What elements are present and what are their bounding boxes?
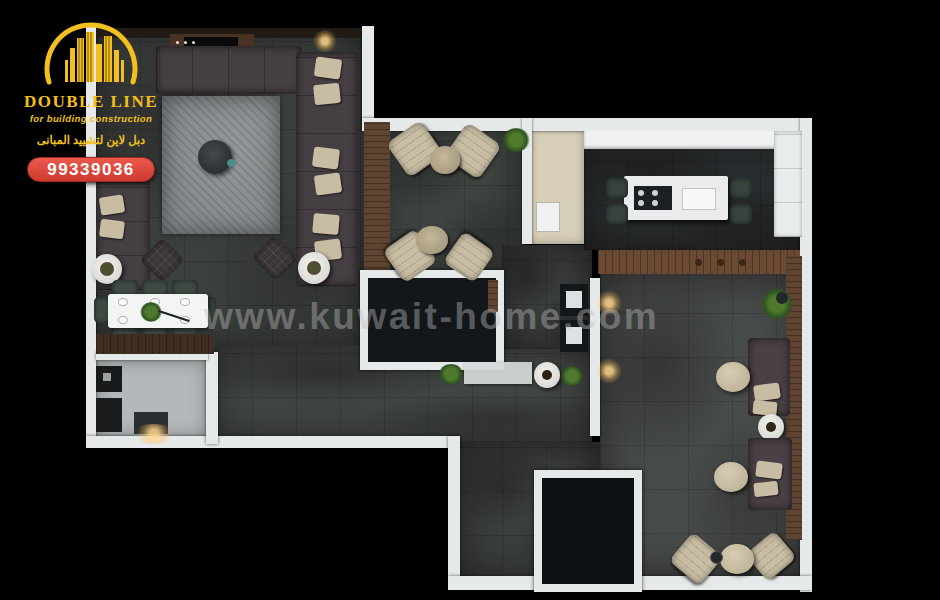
sofa-pillow: [755, 460, 783, 479]
coffee-table: [198, 140, 232, 174]
bathroom: [360, 270, 504, 370]
burner: [638, 200, 644, 206]
fridge-cabinet: [774, 131, 802, 237]
oven-door: [566, 327, 582, 344]
sofa-pillow: [312, 146, 340, 169]
dishwasher: [536, 202, 560, 232]
candle: [176, 41, 179, 44]
majlis-small-table: [710, 551, 723, 564]
majlis-pouf: [716, 362, 750, 392]
place-setting: [118, 316, 128, 324]
candle: [192, 41, 195, 44]
nook-table: [430, 146, 460, 174]
sofa-pillow: [314, 172, 343, 195]
sofa-pillow: [314, 56, 343, 79]
majlis-round-table: [720, 544, 754, 574]
brand-tagline: for building construction: [18, 113, 164, 124]
sofa-pillow: [99, 194, 126, 216]
dining-console: [96, 334, 214, 354]
floorplan-render: www.kuwait-home.com DOUBLE LINE for buil…: [0, 0, 940, 600]
place-setting: [118, 298, 128, 306]
counter-knob: [739, 259, 746, 266]
kitchen-upper-cabinets: [584, 131, 776, 149]
side-table-plant: [307, 261, 321, 275]
hall-table-decor: [542, 370, 552, 380]
wall-top-long: [362, 118, 812, 131]
counter-knob: [717, 259, 724, 266]
hall-plant: [438, 364, 464, 384]
wall-bottom-left: [86, 436, 460, 448]
nook-plant: [502, 128, 530, 152]
phone-badge: 99339036: [27, 157, 155, 182]
hall-runner-mat: [464, 362, 532, 384]
bar-stool: [606, 204, 628, 224]
skyline-logo-icon: [39, 20, 143, 90]
majlis-table-decor: [766, 422, 776, 432]
burner: [652, 200, 658, 206]
brand-name: DOUBLE LINE: [18, 92, 164, 112]
sofa-pillow: [312, 213, 340, 235]
table-decor: [227, 159, 236, 167]
bar-stool: [730, 178, 752, 198]
candle: [184, 41, 187, 44]
bar-stool: [730, 204, 752, 224]
majlis-plant-pot: [776, 292, 788, 304]
hall-plant: [560, 366, 584, 386]
place-setting: [180, 298, 190, 306]
brand-panel: DOUBLE LINE for building construction دب…: [18, 20, 164, 182]
burner: [638, 190, 644, 196]
burner: [652, 190, 658, 196]
sofa-pillow: [99, 219, 125, 240]
storage-room: [534, 470, 642, 592]
utility-mat: [134, 412, 168, 434]
bathroom-door: [488, 280, 498, 312]
sofa-pillow: [753, 481, 778, 497]
brand-tagline-arabic: دبل لاين لتشييد المبانى: [18, 133, 164, 147]
sofa-pillow: [313, 83, 341, 106]
wall-living-right: [362, 26, 374, 122]
bar-stool: [606, 178, 628, 198]
wall-utility-right: [206, 352, 218, 444]
utility-fixture-detail: [103, 373, 111, 381]
wall-mid-vertical: [448, 436, 460, 588]
nook-table: [416, 226, 448, 254]
oven-door: [566, 291, 582, 308]
utility-fixture: [96, 398, 122, 432]
counter-knob: [695, 259, 702, 266]
side-table-plant: [100, 262, 114, 276]
wall-majlis-left: [590, 278, 600, 436]
island-sink: [682, 188, 716, 210]
sofa-top: [156, 46, 302, 94]
majlis-pouf: [714, 462, 748, 492]
